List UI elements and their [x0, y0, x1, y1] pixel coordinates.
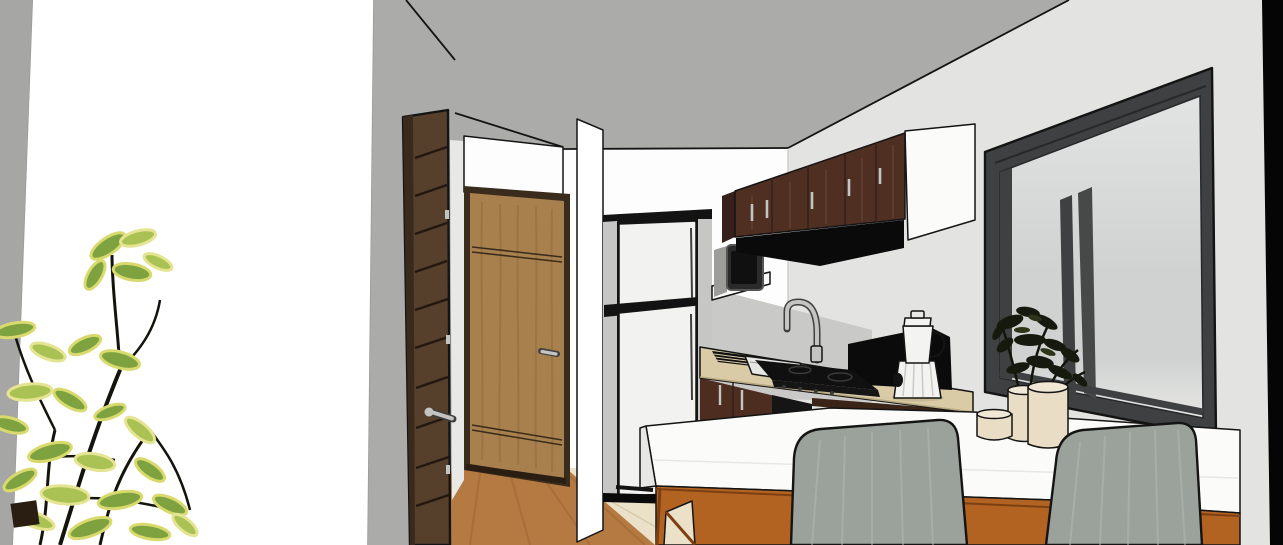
microwave-window	[731, 251, 757, 284]
fridge-left-panel	[603, 221, 617, 498]
plant-pot-glimpse	[10, 500, 39, 527]
interior-render	[0, 0, 1283, 545]
cabinet-side-face	[722, 191, 735, 243]
door-header-wall	[464, 136, 563, 196]
hall-jamb	[450, 140, 464, 500]
hallway	[450, 136, 570, 500]
left-white-wall	[13, 0, 374, 545]
interior-render-canvas	[0, 0, 1283, 545]
vase-small	[977, 410, 1012, 441]
vase-tall-front	[1028, 382, 1068, 449]
entry-door	[403, 110, 453, 545]
blender-lid-cap	[911, 311, 924, 318]
chair-center	[791, 420, 967, 545]
blender-jar	[903, 326, 933, 363]
chair-right	[1046, 423, 1202, 545]
blender-lid	[904, 318, 931, 326]
pillar	[577, 119, 603, 542]
microwave-side	[714, 246, 727, 297]
hall-door-handle	[541, 351, 557, 354]
blender-knob	[893, 373, 903, 387]
freezer-door	[619, 221, 696, 307]
cabinet-end-panel	[905, 124, 975, 240]
fridge-handles	[691, 228, 692, 400]
